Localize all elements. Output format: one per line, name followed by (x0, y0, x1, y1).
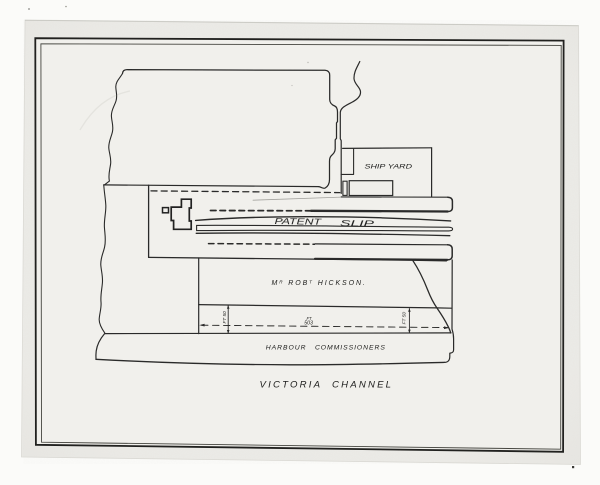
svg-text:MR ROBT HICKSON.: MR ROBT HICKSON. (272, 280, 367, 288)
svg-text:HARBOUR COMMISSIONERS: HARBOUR COMMISSIONERS (266, 345, 386, 352)
svg-text:FT 50: FT 50 (402, 312, 407, 325)
svg-text:VICTORIA CHANNEL: VICTORIA CHANNEL (260, 380, 394, 391)
svg-text:503: 503 (304, 321, 313, 327)
svg-text:FT 50: FT 50 (222, 311, 227, 324)
svg-text:PATENT: PATENT (274, 217, 323, 227)
svg-text:SHIP YARD: SHIP YARD (365, 164, 413, 171)
svg-text:SLIP: SLIP (340, 219, 376, 229)
